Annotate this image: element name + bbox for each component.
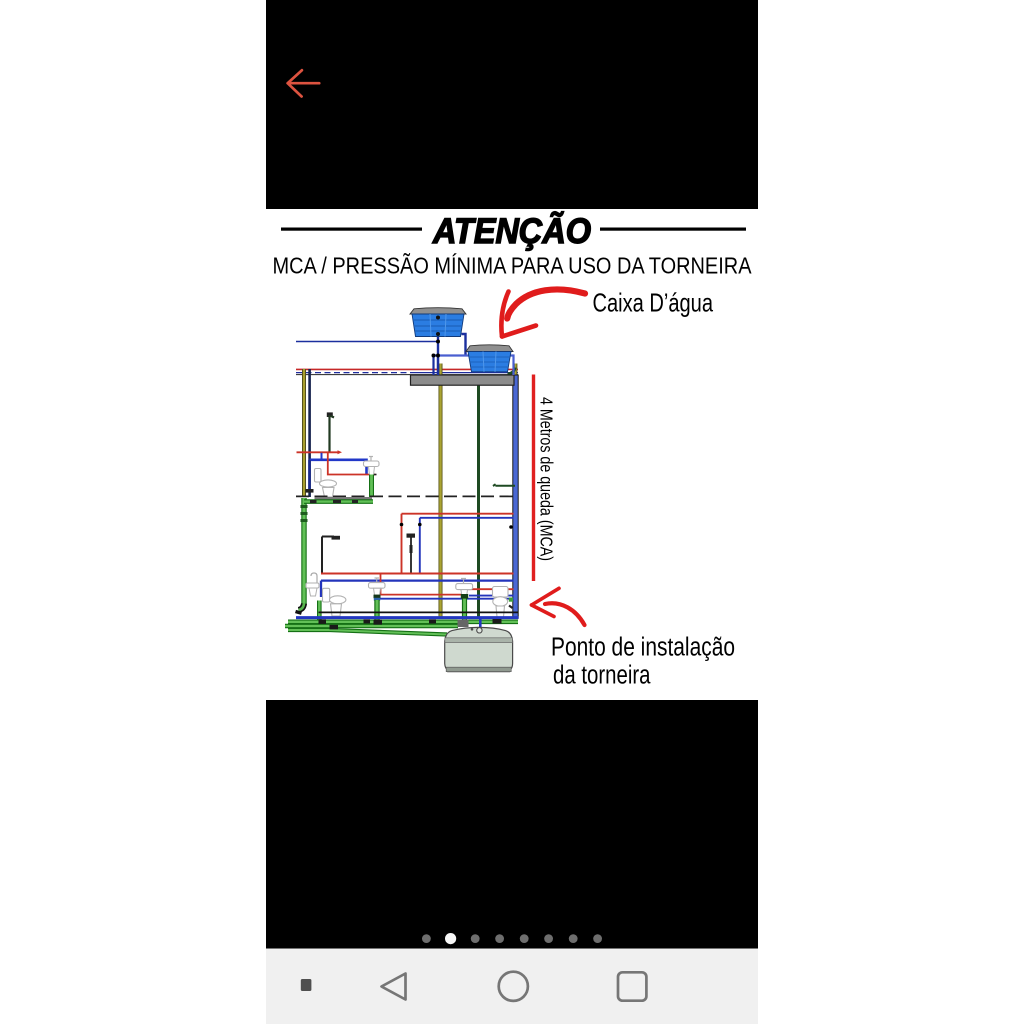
- svg-text:4 Metros de queda (MCA): 4 Metros de queda (MCA): [537, 397, 557, 561]
- svg-text:da torneira: da torneira: [553, 661, 651, 689]
- svg-text:MCA / PRESSÃO MÍNIMA PARA USO: MCA / PRESSÃO MÍNIMA PARA USO DA TORNEIR…: [273, 252, 752, 278]
- svg-text:Caixa D’água: Caixa D’água: [593, 288, 714, 318]
- svg-text:Ponto de instalação: Ponto de instalação: [551, 633, 735, 661]
- svg-text:ATENÇÃO: ATENÇÃO: [432, 212, 591, 251]
